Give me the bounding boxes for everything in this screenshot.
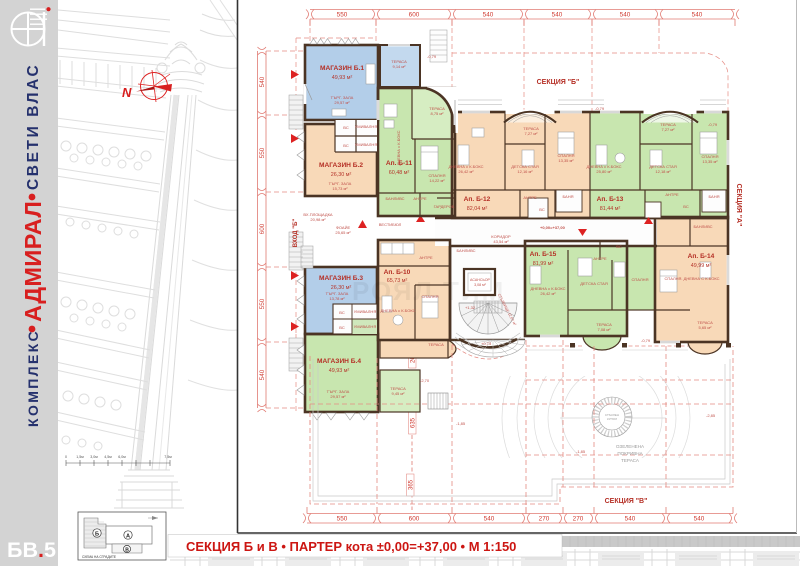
svg-text:3,0м: 3,0м [90, 455, 98, 459]
svg-text:+1,32: +1,32 [465, 305, 476, 310]
svg-text:-0,79: -0,79 [427, 54, 437, 59]
svg-text:13,35 м²: 13,35 м² [702, 159, 718, 164]
svg-text:9,45 м²: 9,45 м² [392, 391, 406, 396]
svg-text:6,0м: 6,0м [118, 455, 126, 459]
svg-text:АНТРЕ: АНТРЕ [593, 256, 607, 261]
svg-text:600: 600 [409, 516, 420, 523]
svg-text:25,80 м²: 25,80 м² [596, 169, 612, 174]
svg-text:СПАЛНЯ: СПАЛНЯ [422, 294, 439, 299]
svg-text:7,27 м²: 7,27 м² [662, 127, 676, 132]
svg-text:270: 270 [573, 516, 584, 523]
svg-text:КУПОЛ: КУПОЛ [607, 417, 617, 421]
svg-text:ВХОД "Б": ВХОД "Б" [293, 219, 299, 248]
svg-text:270: 270 [539, 516, 550, 523]
svg-text:540: 540 [552, 12, 563, 19]
svg-text:Ап. Б-12: Ап. Б-12 [464, 196, 491, 203]
svg-text:-2,85: -2,85 [706, 413, 716, 418]
svg-text:0: 0 [65, 455, 67, 459]
svg-text:12,16 м²: 12,16 м² [517, 169, 533, 174]
svg-text:УМИВАЛНЯ: УМИВАЛНЯ [355, 124, 378, 129]
svg-text:КОМПЛЕКС: КОМПЛЕКС [25, 329, 41, 427]
svg-text:БВ.5: БВ.5 [7, 538, 56, 562]
svg-text:7,08 м²: 7,08 м² [598, 327, 612, 332]
svg-text:БАНЛИВС: БАНЛИВС [693, 224, 712, 229]
svg-text:ПОКРИВНА: ПОКРИВНА [617, 451, 643, 456]
svg-text:АСАНСЬОР: АСАНСЬОР [470, 278, 490, 282]
svg-text:СЕКЦИЯ Б и В • ПАРТЕР кота ±0,: СЕКЦИЯ Б и В • ПАРТЕР кота ±0,00=+37,00 … [186, 539, 516, 554]
svg-text:В: В [125, 547, 129, 553]
svg-text:СЕКЦИЯ "В": СЕКЦИЯ "В" [605, 498, 648, 505]
svg-text:Ап. Б-14: Ап. Б-14 [688, 253, 715, 260]
svg-text:БАНЛИВС: БАНЛИВС [385, 196, 404, 201]
svg-text:СВЕТИ ВЛАС: СВЕТИ ВЛАС [25, 63, 42, 190]
svg-text:МАГАЗИН Б.2: МАГАЗИН Б.2 [319, 162, 363, 169]
svg-text:540: 540 [694, 516, 705, 523]
svg-text:550: 550 [337, 12, 348, 19]
svg-text:Ап. Б-15: Ап. Б-15 [530, 251, 557, 258]
svg-text:ВС: ВС [339, 310, 345, 315]
svg-text:БАНЛИВС: БАНЛИВС [456, 248, 475, 253]
svg-text:+0,73: +0,73 [481, 341, 492, 346]
svg-text:АНТРЕ: АНТРЕ [665, 192, 679, 197]
svg-text:9,14 м²: 9,14 м² [393, 64, 407, 69]
svg-text:ВЕСТИБЮЛ: ВЕСТИБЮЛ [379, 222, 402, 227]
svg-text:20,98 м²: 20,98 м² [310, 217, 326, 222]
svg-text:УМИВАЛНЯ: УМИВАЛНЯ [354, 324, 377, 329]
svg-text:25,65 м²: 25,65 м² [335, 230, 351, 235]
svg-text:81,99 м²: 81,99 м² [533, 261, 554, 267]
svg-text:АНТРЕ: АНТРЕ [413, 196, 427, 201]
svg-text:МАГАЗИН Б.3: МАГАЗИН Б.3 [319, 275, 363, 282]
svg-text:550: 550 [259, 298, 266, 309]
svg-text:-0,79: -0,79 [641, 338, 651, 343]
svg-text:+0,00=+37,00: +0,00=+37,00 [540, 225, 566, 230]
svg-text:29,57 м²: 29,57 м² [330, 394, 346, 399]
svg-text:4,5м: 4,5м [104, 455, 112, 459]
svg-text:26,42 м²: 26,42 м² [540, 291, 556, 296]
svg-text:26,42 м²: 26,42 м² [458, 169, 474, 174]
svg-text:АНТРЕ: АНТРЕ [523, 195, 537, 200]
svg-text:81,44 м²: 81,44 м² [600, 206, 621, 212]
svg-text:СХЕМА НА СГРАДИТЕ: СХЕМА НА СГРАДИТЕ [82, 555, 116, 559]
svg-text:-0,79: -0,79 [595, 106, 605, 111]
svg-text:600: 600 [259, 223, 266, 234]
svg-text:5,65 м²: 5,65 м² [699, 325, 713, 330]
svg-text:635: 635 [411, 417, 417, 428]
svg-text:365: 365 [409, 479, 415, 490]
svg-text:13,35 м²: 13,35 м² [558, 158, 574, 163]
svg-text:540: 540 [625, 516, 636, 523]
svg-text:ВС: ВС [683, 204, 689, 209]
svg-text:540: 540 [483, 12, 494, 19]
svg-text:БАНЯ: БАНЯ [709, 194, 720, 199]
svg-text:N: N [122, 85, 132, 100]
svg-text:550: 550 [259, 147, 266, 158]
svg-text:-1,85: -1,85 [456, 421, 466, 426]
svg-text:-1,85: -1,85 [576, 449, 586, 454]
svg-text:ДЕТСКА СТАЯ: ДЕТСКА СТАЯ [580, 281, 608, 286]
svg-text:12,18 м²: 12,18 м² [655, 169, 671, 174]
svg-text:43,54 м²: 43,54 м² [493, 239, 509, 244]
svg-text:СПАЛНЯ. ДНЕВНА С К.БОКС: СПАЛНЯ. ДНЕВНА С К.БОКС [664, 276, 719, 281]
svg-text:-0,79: -0,79 [708, 122, 718, 127]
svg-text:540: 540 [259, 76, 266, 87]
svg-text:Ап. Б-10: Ап. Б-10 [384, 269, 411, 276]
svg-text:49,93 м²: 49,93 м² [329, 368, 350, 374]
svg-text:А: А [126, 533, 130, 539]
svg-text:ТЕРАСА: ТЕРАСА [621, 458, 640, 463]
svg-text:540: 540 [692, 12, 703, 19]
svg-text:БАНЯ: БАНЯ [563, 194, 574, 199]
svg-text:ВС: ВС [343, 143, 349, 148]
svg-text:ВС: ВС [343, 125, 349, 130]
svg-text:540: 540 [620, 12, 631, 19]
svg-text:ГАРДЕРОБ: ГАРДЕРОБ [434, 204, 455, 209]
svg-text:65,73 м²: 65,73 м² [387, 278, 408, 284]
svg-text:550: 550 [337, 516, 348, 523]
svg-text:1,5м: 1,5м [76, 455, 84, 459]
svg-text:АДМИРАЛ: АДМИРАЛ [20, 201, 46, 322]
svg-text:СПАЛНЯ: СПАЛНЯ [632, 277, 649, 282]
svg-text:Б: Б [95, 531, 99, 537]
svg-text:ВС: ВС [616, 244, 622, 249]
svg-text:8,75 м²: 8,75 м² [431, 111, 445, 116]
svg-text:60,48 м²: 60,48 м² [389, 170, 410, 176]
svg-text:МАГАЗИН Б.4: МАГАЗИН Б.4 [317, 358, 361, 365]
svg-text:7,5м: 7,5м [164, 455, 172, 459]
svg-text:3,08 м²: 3,08 м² [474, 283, 486, 287]
svg-text:СЕКЦИЯ "Б": СЕКЦИЯ "Б" [537, 79, 580, 86]
svg-text:УМИВАЛНЯ: УМИВАЛНЯ [354, 309, 377, 314]
svg-text:ДНЕВНА с К.БОКС: ДНЕВНА с К.БОКС [380, 308, 415, 313]
svg-text:540: 540 [259, 369, 266, 380]
svg-text:13,78 м²: 13,78 м² [329, 296, 345, 301]
svg-text:ВС: ВС [539, 207, 545, 212]
svg-text:АНТРЕ: АНТРЕ [419, 255, 433, 260]
svg-text:ТЕРАСА: ТЕРАСА [428, 342, 444, 347]
svg-text:СЕКЦИЯ "А": СЕКЦИЯ "А" [735, 184, 742, 227]
svg-text:600: 600 [409, 12, 420, 19]
svg-text:-2,70: -2,70 [420, 378, 430, 383]
svg-text:УМИВАЛНЯ: УМИВАЛНЯ [355, 142, 378, 147]
svg-text:ДНЕВНА с К.БОКС: ДНЕВНА с К.БОКС [396, 130, 401, 165]
svg-text:Ап. Б-13: Ап. Б-13 [597, 196, 624, 203]
svg-text:29,57 м²: 29,57 м² [334, 100, 350, 105]
svg-text:ВС: ВС [339, 325, 345, 330]
svg-text:49,99 м²: 49,99 м² [691, 263, 712, 269]
svg-text:82,04 м²: 82,04 м² [467, 206, 488, 212]
svg-text:15,73 м²: 15,73 м² [332, 186, 348, 191]
svg-text:14,22 м²: 14,22 м² [429, 178, 445, 183]
svg-text:26,30 м²: 26,30 м² [331, 172, 352, 178]
svg-text:540: 540 [484, 516, 495, 523]
svg-text:7,27 м²: 7,27 м² [525, 131, 539, 136]
svg-text:МАГАЗИН Б.1: МАГАЗИН Б.1 [320, 65, 364, 72]
svg-text:49,93 м²: 49,93 м² [332, 75, 353, 81]
svg-text:ОЗЕЛЕНЕНА: ОЗЕЛЕНЕНА [616, 444, 645, 449]
